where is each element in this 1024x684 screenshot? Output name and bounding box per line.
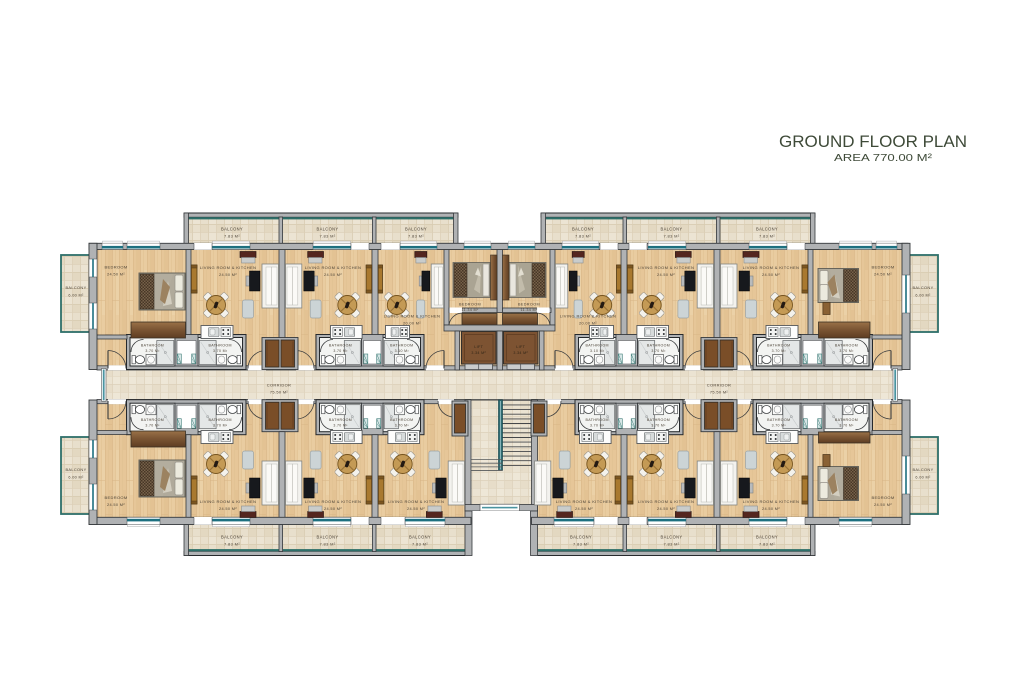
svg-text:24.50 M²: 24.50 M² bbox=[407, 506, 425, 511]
svg-text:BEDROOM: BEDROOM bbox=[459, 303, 481, 307]
svg-text:7.83 M²: 7.83 M² bbox=[759, 542, 775, 547]
svg-text:7.83 M²: 7.83 M² bbox=[663, 234, 679, 239]
svg-text:3.70 M²: 3.70 M² bbox=[772, 349, 787, 353]
svg-text:24.50 M²: 24.50 M² bbox=[762, 506, 780, 511]
svg-text:7.83 M²: 7.83 M² bbox=[224, 234, 240, 239]
svg-text:LIFT: LIFT bbox=[516, 345, 525, 349]
svg-text:24.50 M²: 24.50 M² bbox=[575, 506, 593, 511]
svg-text:BALCONY: BALCONY bbox=[405, 227, 427, 232]
svg-text:BALCONY: BALCONY bbox=[316, 227, 338, 232]
svg-text:BATHROOM: BATHROOM bbox=[586, 344, 609, 348]
svg-text:20.00 M²: 20.00 M² bbox=[579, 321, 597, 326]
svg-text:BATHROOM: BATHROOM bbox=[329, 418, 352, 422]
svg-text:3.70 M²: 3.70 M² bbox=[839, 349, 854, 353]
svg-text:BALCONY: BALCONY bbox=[912, 285, 933, 290]
svg-text:3.70 M²: 3.70 M² bbox=[651, 424, 666, 428]
svg-text:11.34 M²: 11.34 M² bbox=[520, 308, 537, 312]
svg-text:BALCONY: BALCONY bbox=[221, 535, 243, 540]
svg-text:BATHROOM: BATHROOM bbox=[141, 418, 164, 422]
svg-text:7.83 M²: 7.83 M² bbox=[663, 542, 679, 547]
svg-text:BALCONY: BALCONY bbox=[660, 535, 682, 540]
svg-text:6.00 M²: 6.00 M² bbox=[68, 476, 84, 480]
svg-text:BATHROOM: BATHROOM bbox=[141, 344, 164, 348]
svg-text:LIVING ROOM & KITCHEN: LIVING ROOM & KITCHEN bbox=[305, 265, 361, 270]
svg-text:BATHROOM: BATHROOM bbox=[390, 344, 413, 348]
svg-text:BEDROOM: BEDROOM bbox=[104, 495, 127, 500]
svg-text:BATHROOM: BATHROOM bbox=[586, 418, 609, 422]
svg-text:LIVING ROOM & KITCHEN: LIVING ROOM & KITCHEN bbox=[560, 314, 616, 319]
svg-text:LIVING ROOM & KITCHEN: LIVING ROOM & KITCHEN bbox=[638, 499, 694, 504]
svg-text:7.83 M²: 7.83 M² bbox=[224, 542, 240, 547]
svg-text:BALCONY: BALCONY bbox=[65, 467, 86, 472]
svg-text:BALCONY: BALCONY bbox=[912, 467, 933, 472]
svg-text:24.50 M²: 24.50 M² bbox=[219, 506, 237, 511]
svg-text:24.50 M²: 24.50 M² bbox=[107, 502, 125, 507]
svg-text:3.70 M²: 3.70 M² bbox=[333, 424, 348, 428]
svg-text:CORRIDOR: CORRIDOR bbox=[707, 383, 732, 388]
svg-text:3.70 M²: 3.70 M² bbox=[839, 424, 854, 428]
svg-text:BALCONY: BALCONY bbox=[756, 227, 778, 232]
svg-text:BEDROOM: BEDROOM bbox=[871, 265, 894, 270]
svg-text:3.70 M²: 3.70 M² bbox=[213, 424, 228, 428]
svg-text:BALCONY: BALCONY bbox=[660, 227, 682, 232]
svg-text:7.83 M²: 7.83 M² bbox=[319, 234, 335, 239]
svg-text:75.50 M²: 75.50 M² bbox=[270, 390, 289, 395]
svg-text:6.00 M²: 6.00 M² bbox=[68, 294, 84, 298]
svg-text:24.50 M²: 24.50 M² bbox=[874, 502, 892, 507]
svg-text:BALCONY: BALCONY bbox=[756, 535, 778, 540]
svg-text:20.00 M²: 20.00 M² bbox=[403, 321, 421, 326]
svg-text:7.83 M²: 7.83 M² bbox=[408, 234, 424, 239]
svg-text:24.50 M²: 24.50 M² bbox=[219, 272, 237, 277]
svg-text:LIVING ROOM & KITCHEN: LIVING ROOM & KITCHEN bbox=[200, 499, 256, 504]
svg-text:BATHROOM: BATHROOM bbox=[835, 344, 858, 348]
svg-text:LIVING ROOM & KITCHEN: LIVING ROOM & KITCHEN bbox=[743, 499, 799, 504]
svg-text:BALCONY: BALCONY bbox=[65, 285, 86, 290]
svg-text:BEDROOM: BEDROOM bbox=[104, 265, 127, 270]
svg-text:24.50 M²: 24.50 M² bbox=[762, 272, 780, 277]
svg-text:3.34 M²: 3.34 M² bbox=[513, 351, 528, 355]
svg-text:BALCONY: BALCONY bbox=[572, 227, 594, 232]
svg-text:7.83 M²: 7.83 M² bbox=[573, 542, 589, 547]
svg-text:CORRIDOR: CORRIDOR bbox=[267, 383, 292, 388]
svg-text:BEDROOM: BEDROOM bbox=[518, 303, 540, 307]
svg-text:LIVING ROOM & KITCHEN: LIVING ROOM & KITCHEN bbox=[638, 265, 694, 270]
svg-text:3.10 M²: 3.10 M² bbox=[590, 349, 605, 353]
svg-text:3.70 M²: 3.70 M² bbox=[590, 424, 605, 428]
svg-text:24.50 M²: 24.50 M² bbox=[657, 506, 675, 511]
svg-text:3.10 M²: 3.10 M² bbox=[395, 349, 410, 353]
svg-text:BALCONY: BALCONY bbox=[316, 535, 338, 540]
svg-text:24.50 M²: 24.50 M² bbox=[874, 272, 892, 277]
svg-text:3.70 M²: 3.70 M² bbox=[651, 349, 666, 353]
svg-text:BALCONY: BALCONY bbox=[570, 535, 592, 540]
svg-text:24.50 M²: 24.50 M² bbox=[107, 272, 125, 277]
svg-text:LIVING ROOM & KITCHEN: LIVING ROOM & KITCHEN bbox=[384, 314, 440, 319]
svg-text:3.70 M²: 3.70 M² bbox=[395, 424, 410, 428]
svg-text:AREA 770.00 M²: AREA 770.00 M² bbox=[834, 152, 933, 164]
svg-text:LIVING ROOM & KITCHEN: LIVING ROOM & KITCHEN bbox=[743, 265, 799, 270]
svg-text:LIVING ROOM & KITCHEN: LIVING ROOM & KITCHEN bbox=[200, 265, 256, 270]
svg-text:7.83 M²: 7.83 M² bbox=[412, 542, 428, 547]
svg-text:11.34 M²: 11.34 M² bbox=[461, 308, 478, 312]
svg-text:3.70 M²: 3.70 M² bbox=[145, 424, 160, 428]
svg-text:6.00 M²: 6.00 M² bbox=[915, 294, 931, 298]
svg-text:7.83 M²: 7.83 M² bbox=[759, 234, 775, 239]
svg-text:BATHROOM: BATHROOM bbox=[329, 344, 352, 348]
svg-text:BALCONY: BALCONY bbox=[409, 535, 431, 540]
svg-text:24.50 M²: 24.50 M² bbox=[324, 272, 342, 277]
svg-text:3.70 M²: 3.70 M² bbox=[333, 349, 348, 353]
svg-text:BATHROOM: BATHROOM bbox=[647, 344, 670, 348]
svg-text:BATHROOM: BATHROOM bbox=[767, 344, 790, 348]
svg-text:BEDROOM: BEDROOM bbox=[871, 495, 894, 500]
svg-text:24.50 M²: 24.50 M² bbox=[657, 272, 675, 277]
svg-text:3.70 M²: 3.70 M² bbox=[145, 349, 160, 353]
svg-text:24.50 M²: 24.50 M² bbox=[324, 506, 342, 511]
svg-text:3.70 M²: 3.70 M² bbox=[772, 424, 787, 428]
svg-text:3.34 M²: 3.34 M² bbox=[471, 351, 486, 355]
svg-text:7.83 M²: 7.83 M² bbox=[575, 234, 591, 239]
svg-text:BATHROOM: BATHROOM bbox=[647, 418, 670, 422]
svg-text:GROUND FLOOR PLAN: GROUND FLOOR PLAN bbox=[779, 132, 967, 151]
svg-text:3.70 M²: 3.70 M² bbox=[213, 349, 228, 353]
svg-text:BALCONY: BALCONY bbox=[221, 227, 243, 232]
svg-text:LIVING ROOM & KITCHEN: LIVING ROOM & KITCHEN bbox=[388, 499, 444, 504]
svg-text:75.50 M²: 75.50 M² bbox=[710, 390, 729, 395]
svg-text:6.00 M²: 6.00 M² bbox=[915, 476, 931, 480]
svg-text:7.83 M²: 7.83 M² bbox=[319, 542, 335, 547]
svg-text:LIVING ROOM & KITCHEN: LIVING ROOM & KITCHEN bbox=[305, 499, 361, 504]
svg-text:LIFT: LIFT bbox=[474, 345, 483, 349]
svg-text:BATHROOM: BATHROOM bbox=[390, 418, 413, 422]
svg-text:BATHROOM: BATHROOM bbox=[209, 418, 232, 422]
svg-text:BATHROOM: BATHROOM bbox=[767, 418, 790, 422]
svg-text:BATHROOM: BATHROOM bbox=[209, 344, 232, 348]
svg-text:LIVING ROOM & KITCHEN: LIVING ROOM & KITCHEN bbox=[556, 499, 612, 504]
svg-text:BATHROOM: BATHROOM bbox=[835, 418, 858, 422]
